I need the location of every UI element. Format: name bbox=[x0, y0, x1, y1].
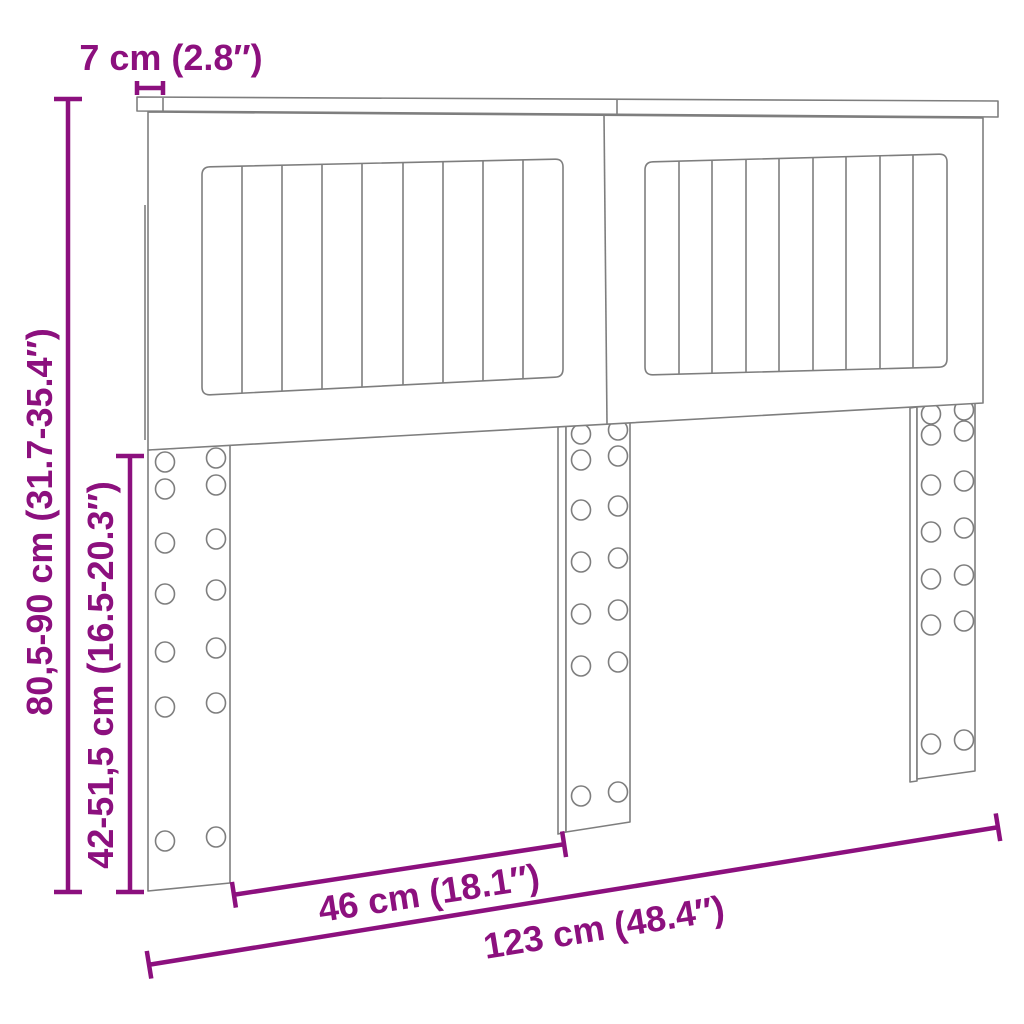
bolt-hole bbox=[955, 471, 974, 491]
bolt-hole bbox=[609, 652, 628, 672]
diagram-canvas: 7 cm (2.8″) 80,5-90 cm (31.7-35.4″) 42-5… bbox=[0, 0, 1024, 1024]
bolt-hole bbox=[572, 450, 591, 470]
bolt-hole bbox=[922, 475, 941, 495]
bolt-hole bbox=[955, 421, 974, 441]
bolt-hole bbox=[955, 611, 974, 631]
bolt-hole bbox=[922, 425, 941, 445]
bolt-hole bbox=[955, 518, 974, 538]
bolt-hole bbox=[156, 697, 175, 717]
bolt-hole bbox=[922, 615, 941, 635]
bolt-hole bbox=[609, 600, 628, 620]
bolt-hole bbox=[207, 529, 226, 549]
bolt-hole bbox=[572, 656, 591, 676]
bolt-hole bbox=[609, 446, 628, 466]
middle-leg-face bbox=[566, 421, 630, 832]
bolt-hole bbox=[156, 584, 175, 604]
label-leg-height: 42-51,5 cm (16.5-20.3″) bbox=[80, 481, 121, 868]
bolt-hole bbox=[922, 734, 941, 754]
bolt-hole bbox=[156, 831, 175, 851]
bolt-hole bbox=[156, 479, 175, 499]
dim-line-top-thickness bbox=[137, 81, 163, 95]
middle-leg-side-edge bbox=[558, 426, 566, 834]
slat-panel-frame bbox=[645, 154, 947, 375]
bolt-hole bbox=[609, 782, 628, 802]
bolt-hole bbox=[207, 475, 226, 495]
bolt-hole bbox=[922, 522, 941, 542]
bolt-hole bbox=[207, 580, 226, 600]
bolt-hole bbox=[156, 642, 175, 662]
headboard-dimension-diagram: 7 cm (2.8″) 80,5-90 cm (31.7-35.4″) 42-5… bbox=[0, 0, 1024, 1024]
slat-panel-frame bbox=[202, 159, 563, 395]
middle-leg bbox=[558, 420, 630, 834]
bolt-hole bbox=[207, 693, 226, 713]
bolt-hole bbox=[609, 496, 628, 516]
bolt-hole bbox=[207, 827, 226, 847]
bolt-hole bbox=[572, 552, 591, 572]
label-total-height-wrap: 80,5-90 cm (31.7-35.4″) bbox=[19, 328, 60, 715]
right-leg-face bbox=[917, 402, 975, 779]
label-total-height: 80,5-90 cm (31.7-35.4″) bbox=[19, 328, 60, 715]
bolt-hole bbox=[955, 565, 974, 585]
bolt-hole bbox=[572, 500, 591, 520]
bolt-hole bbox=[572, 424, 591, 444]
right-leg-side-edge bbox=[910, 407, 917, 782]
bolt-hole bbox=[572, 604, 591, 624]
left-leg-face bbox=[148, 445, 230, 891]
right-leg bbox=[910, 400, 975, 782]
bolt-hole bbox=[156, 533, 175, 553]
dim-line-total-width bbox=[147, 813, 1000, 978]
bolt-hole bbox=[609, 548, 628, 568]
bolt-hole bbox=[572, 786, 591, 806]
bolt-hole bbox=[156, 452, 175, 472]
bolt-hole bbox=[207, 448, 226, 468]
dim-line-total-width-shape bbox=[147, 813, 1000, 978]
bolt-hole bbox=[922, 569, 941, 589]
label-leg-height-wrap: 42-51,5 cm (16.5-20.3″) bbox=[80, 481, 121, 868]
right-slat-panel bbox=[645, 154, 947, 375]
bolt-hole bbox=[207, 638, 226, 658]
left-slat-panel bbox=[202, 159, 563, 395]
left-leg bbox=[148, 445, 230, 891]
bolt-hole bbox=[955, 730, 974, 750]
label-top-thickness: 7 cm (2.8″) bbox=[79, 37, 262, 78]
legs bbox=[148, 400, 975, 891]
